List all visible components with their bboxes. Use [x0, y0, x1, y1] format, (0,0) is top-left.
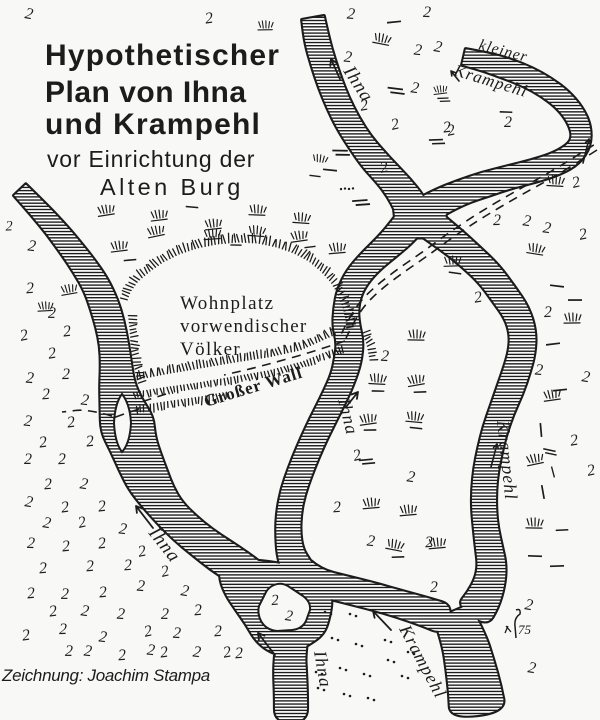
svg-text:Wohnplatz: Wohnplatz: [180, 293, 274, 314]
svg-text:Völker: Völker: [180, 339, 241, 360]
svg-text:Alten Burg: Alten Burg: [100, 174, 244, 200]
svg-text:Hypothetischer: Hypothetischer: [45, 39, 280, 72]
svg-text:und Krampehl: und Krampehl: [45, 108, 261, 141]
svg-text:Plan von Ihna: Plan von Ihna: [45, 76, 247, 109]
svg-text:vor Einrichtung der: vor Einrichtung der: [47, 146, 255, 172]
svg-text:vorwendischer: vorwendischer: [180, 316, 307, 337]
svg-text:Zeichnung: Joachim Stampa: Zeichnung: Joachim Stampa: [1, 666, 210, 685]
svg-text:75: 75: [518, 622, 532, 637]
